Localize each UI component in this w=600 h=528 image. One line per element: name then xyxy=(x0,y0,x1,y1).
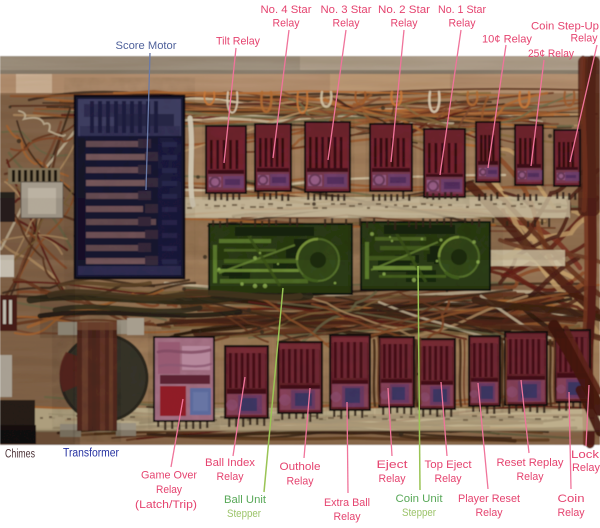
svg-text:Relay: Relay xyxy=(435,473,462,485)
svg-text:Eject: Eject xyxy=(377,459,408,471)
svg-text:Tilt Relay: Tilt Relay xyxy=(216,36,260,48)
svg-text:10¢ Relay: 10¢ Relay xyxy=(482,34,532,46)
svg-text:No. 1 Star: No. 1 Star xyxy=(438,4,486,16)
svg-text:Top Eject: Top Eject xyxy=(425,459,472,471)
svg-text:Relay: Relay xyxy=(391,18,418,30)
svg-text:Relay: Relay xyxy=(156,484,182,496)
svg-text:Relay: Relay xyxy=(571,33,598,45)
svg-text:Chimes: Chimes xyxy=(5,449,35,461)
svg-text:Relay: Relay xyxy=(334,511,361,523)
svg-text:Outhole: Outhole xyxy=(280,461,321,473)
svg-text:Relay: Relay xyxy=(517,471,544,483)
svg-text:Score Motor: Score Motor xyxy=(116,40,177,52)
svg-text:Extra Ball: Extra Ball xyxy=(324,497,370,509)
svg-text:Relay: Relay xyxy=(558,507,585,519)
svg-text:No. 3 Star: No. 3 Star xyxy=(321,4,372,16)
svg-text:Lock: Lock xyxy=(571,449,600,461)
svg-text:Relay: Relay xyxy=(449,18,476,30)
svg-text:Relay: Relay xyxy=(379,473,406,485)
svg-text:Ball Index: Ball Index xyxy=(205,457,256,469)
svg-text:Stepper: Stepper xyxy=(227,508,261,520)
svg-text:Relay: Relay xyxy=(333,18,360,30)
svg-text:Relay: Relay xyxy=(476,507,503,519)
svg-text:No. 2 Star: No. 2 Star xyxy=(378,4,430,16)
svg-text:Transformer: Transformer xyxy=(63,448,119,460)
svg-text:No. 4 Star: No. 4 Star xyxy=(261,4,312,16)
svg-text:Coin Step-Up: Coin Step-Up xyxy=(531,21,599,33)
svg-text:Player Reset: Player Reset xyxy=(458,493,520,505)
svg-text:(Latch/Trip): (Latch/Trip) xyxy=(135,499,197,511)
svg-text:Coin: Coin xyxy=(558,493,585,505)
svg-text:Relay: Relay xyxy=(572,462,600,474)
svg-text:Reset Replay: Reset Replay xyxy=(497,457,564,469)
svg-text:Relay: Relay xyxy=(287,476,314,488)
svg-text:Relay: Relay xyxy=(217,471,244,483)
svg-text:Stepper: Stepper xyxy=(402,507,436,519)
svg-text:Game Over: Game Over xyxy=(141,470,197,482)
svg-text:25¢ Relay: 25¢ Relay xyxy=(528,48,574,60)
svg-text:Coin Unit: Coin Unit xyxy=(396,493,443,505)
svg-text:Ball Unit: Ball Unit xyxy=(224,494,266,506)
svg-text:Relay: Relay xyxy=(273,18,300,30)
